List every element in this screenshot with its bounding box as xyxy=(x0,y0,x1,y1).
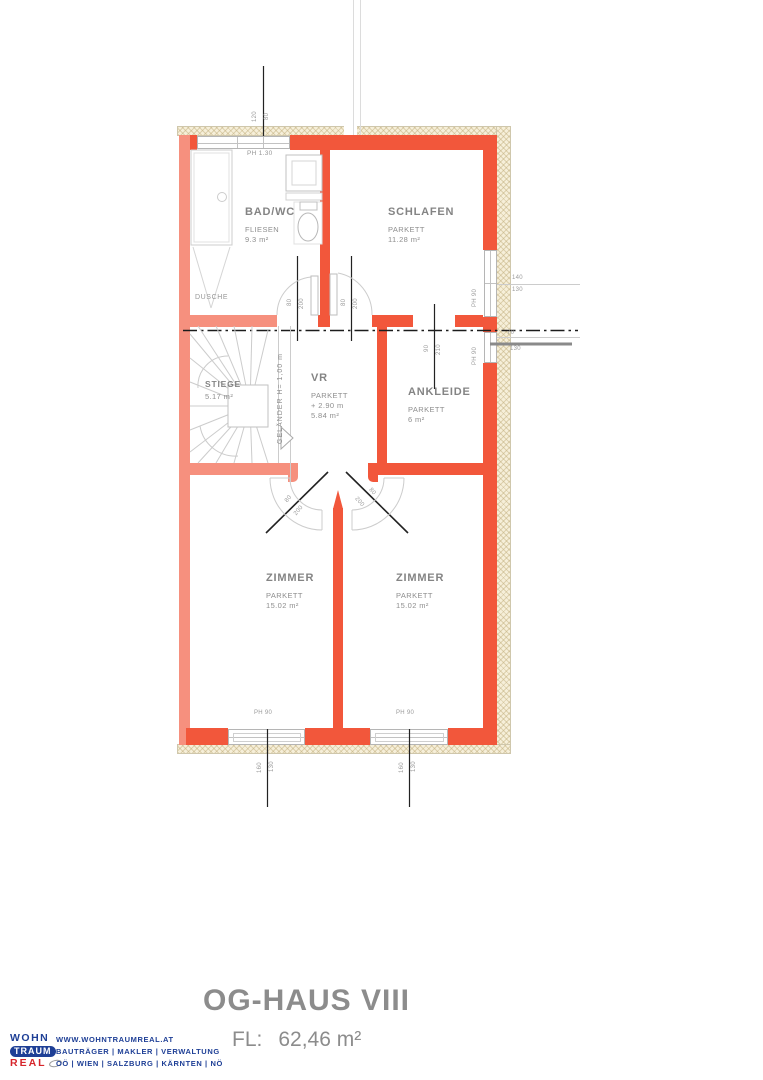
dim-right-140: 140 xyxy=(512,275,523,281)
shower-fixture xyxy=(191,150,232,245)
dim-door1-width: 80 xyxy=(287,299,293,306)
wall-bottom-seg1 xyxy=(186,728,228,745)
vanity-fixture xyxy=(286,155,322,200)
room-schlafen: SCHLAFEN PARKETT 11.28 m² xyxy=(388,206,454,245)
dim-door2-height: 200 xyxy=(353,298,359,309)
wall-mid-right1 xyxy=(372,315,413,327)
company-info: WWW.WOHNTRAUMREAL.AT BAUTRÄGER | MAKLER … xyxy=(56,1034,223,1070)
window-right-upper xyxy=(484,250,497,317)
wall-bottom-seg3 xyxy=(448,728,497,745)
room-area: 5.17 m² xyxy=(205,392,241,402)
logo-line-traum: TRAUM xyxy=(10,1046,56,1057)
room-floor: FLIESEN xyxy=(245,225,295,235)
room-area: 15.02 m² xyxy=(396,601,444,611)
logo-line-wohn: WOHN xyxy=(10,1032,62,1044)
window-mullion xyxy=(237,137,238,148)
company-website: WWW.WOHNTRAUMREAL.AT xyxy=(56,1034,223,1046)
dim-right-70: 70 xyxy=(507,330,514,336)
dimension-lines xyxy=(264,66,435,807)
company-regions: OÖ | WIEN | SALZBURG | KÄRNTEN | NÖ xyxy=(56,1058,223,1070)
gelaender-label: GELÄNDER H= 1,00 m xyxy=(277,353,284,444)
wall-stiege-bottom xyxy=(186,463,298,475)
insulation-band-right xyxy=(497,127,510,753)
room-floor: PARKETT xyxy=(396,591,444,601)
window-frame-line xyxy=(198,143,289,144)
logo-line-real: REAL xyxy=(10,1057,62,1069)
wall-mid-stub xyxy=(318,315,330,327)
wall-right-lower xyxy=(483,363,497,745)
door-schlafen xyxy=(330,273,372,315)
dusche-label: DUSCHE xyxy=(195,294,228,301)
window-mullion xyxy=(263,137,264,148)
floor-area-line: FL:62,46 m² xyxy=(232,1028,361,1052)
room-badwc: BAD/WC FLIESEN 9.3 m² xyxy=(245,206,295,245)
wall-ankleide-stub xyxy=(368,463,378,482)
dim-door2-width: 80 xyxy=(341,299,347,306)
parapet-height-top: PH 1.30 xyxy=(247,150,273,157)
window-top xyxy=(197,136,290,149)
room-name: ZIMMER xyxy=(396,572,444,584)
wall-badwc-schlafen xyxy=(320,150,330,315)
room-name: VR xyxy=(311,372,348,384)
dim-top-120: 120 xyxy=(252,111,258,122)
room-zimmer-left: ZIMMER PARKETT 15.02 m² xyxy=(266,572,314,611)
window-frame-inner xyxy=(233,733,301,742)
dim-fanR-width: 80 xyxy=(367,487,376,496)
parapet-height-bottom-right: PH 90 xyxy=(396,710,414,716)
window-frame-line xyxy=(485,283,496,284)
dim-bottomL-160: 160 xyxy=(257,762,263,773)
room-floor: PARKETT xyxy=(311,391,348,401)
room-area: 15.02 m² xyxy=(266,601,314,611)
wall-mid-right2 xyxy=(455,315,483,327)
parapet-height-bottom-left: PH 90 xyxy=(254,710,272,716)
wall-mid-left xyxy=(186,315,277,327)
parapet-height-right-upper: PH 90 xyxy=(472,289,478,307)
room-area: 9.3 m² xyxy=(245,235,295,245)
dim-bottomL-130: 130 xyxy=(269,761,275,772)
wall-right-upper xyxy=(483,150,497,250)
floor-area-value: 62,46 m² xyxy=(278,1028,361,1051)
room-name: SCHLAFEN xyxy=(388,206,454,218)
wall-zimmer-divider xyxy=(333,508,343,745)
dim-fanL-height: 200 xyxy=(293,505,305,517)
wall-top-main xyxy=(290,135,497,150)
party-wall-reference-line xyxy=(354,0,361,135)
wall-ankleide-left xyxy=(377,327,387,475)
dim-fanL-width: 80 xyxy=(284,494,293,503)
window-right-lower xyxy=(484,332,497,363)
door-badwc xyxy=(277,276,318,315)
floorplan-page: BAD/WC FLIESEN 9.3 m² SCHLAFEN PARKETT 1… xyxy=(0,0,763,1080)
room-name: ANKLEIDE xyxy=(408,386,471,398)
room-floor: PARKETT xyxy=(266,591,314,601)
room-level: + 2.90 m xyxy=(311,401,348,411)
wall-ankleide-bottom xyxy=(368,463,483,475)
wall-left-exterior xyxy=(179,135,190,745)
dim-right-130b: 130 xyxy=(510,346,521,352)
dim-right-130a: 130 xyxy=(512,287,523,293)
floor-area-label: FL: xyxy=(232,1028,262,1051)
room-area: 5.84 m² xyxy=(311,411,348,421)
room-zimmer-right: ZIMMER PARKETT 15.02 m² xyxy=(396,572,444,611)
window-bottom-right xyxy=(370,729,448,745)
dim-bottomR-160: 160 xyxy=(399,762,405,773)
wall-zimmer-divider-point xyxy=(333,490,343,509)
dim-ankleide-door-height: 210 xyxy=(436,344,442,355)
room-stiege: STIEGE 5.17 m² xyxy=(205,379,241,402)
window-frame-inner xyxy=(375,733,444,742)
parapet-height-right-lower: PH 90 xyxy=(472,347,478,365)
plan-linework xyxy=(0,0,763,1080)
room-name: STIEGE xyxy=(205,379,241,389)
dim-door1-height: 200 xyxy=(299,298,305,309)
insulation-band-bottom xyxy=(178,745,510,753)
room-vr: VR PARKETT + 2.90 m 5.84 m² xyxy=(311,372,348,421)
room-area: 6 m² xyxy=(408,415,471,425)
company-logo: WOHN TRAUM REAL xyxy=(10,1032,62,1069)
room-name: BAD/WC xyxy=(245,206,295,218)
dim-top-80: 80 xyxy=(264,113,270,120)
room-name: ZIMMER xyxy=(266,572,314,584)
dim-fanR-height: 200 xyxy=(353,496,365,508)
room-floor: PARKETT xyxy=(408,405,471,415)
company-services: BAUTRÄGER | MAKLER | VERWALTUNG xyxy=(56,1046,223,1058)
wall-right-mid xyxy=(483,317,497,332)
wall-stiege-stub xyxy=(288,463,298,482)
room-area: 11.28 m² xyxy=(388,235,454,245)
window-frame-line xyxy=(490,333,491,362)
room-floor: PARKETT xyxy=(388,225,454,235)
dim-bottomR-130: 130 xyxy=(411,761,417,772)
page-title: OG-HAUS VIII xyxy=(203,984,410,1018)
window-bottom-left xyxy=(228,729,305,745)
toilet-fixture xyxy=(294,202,322,244)
dim-ankleide-door-width: 90 xyxy=(424,345,430,352)
room-ankleide: ANKLEIDE PARKETT 6 m² xyxy=(408,386,471,425)
door-zimmer-left xyxy=(266,472,328,533)
